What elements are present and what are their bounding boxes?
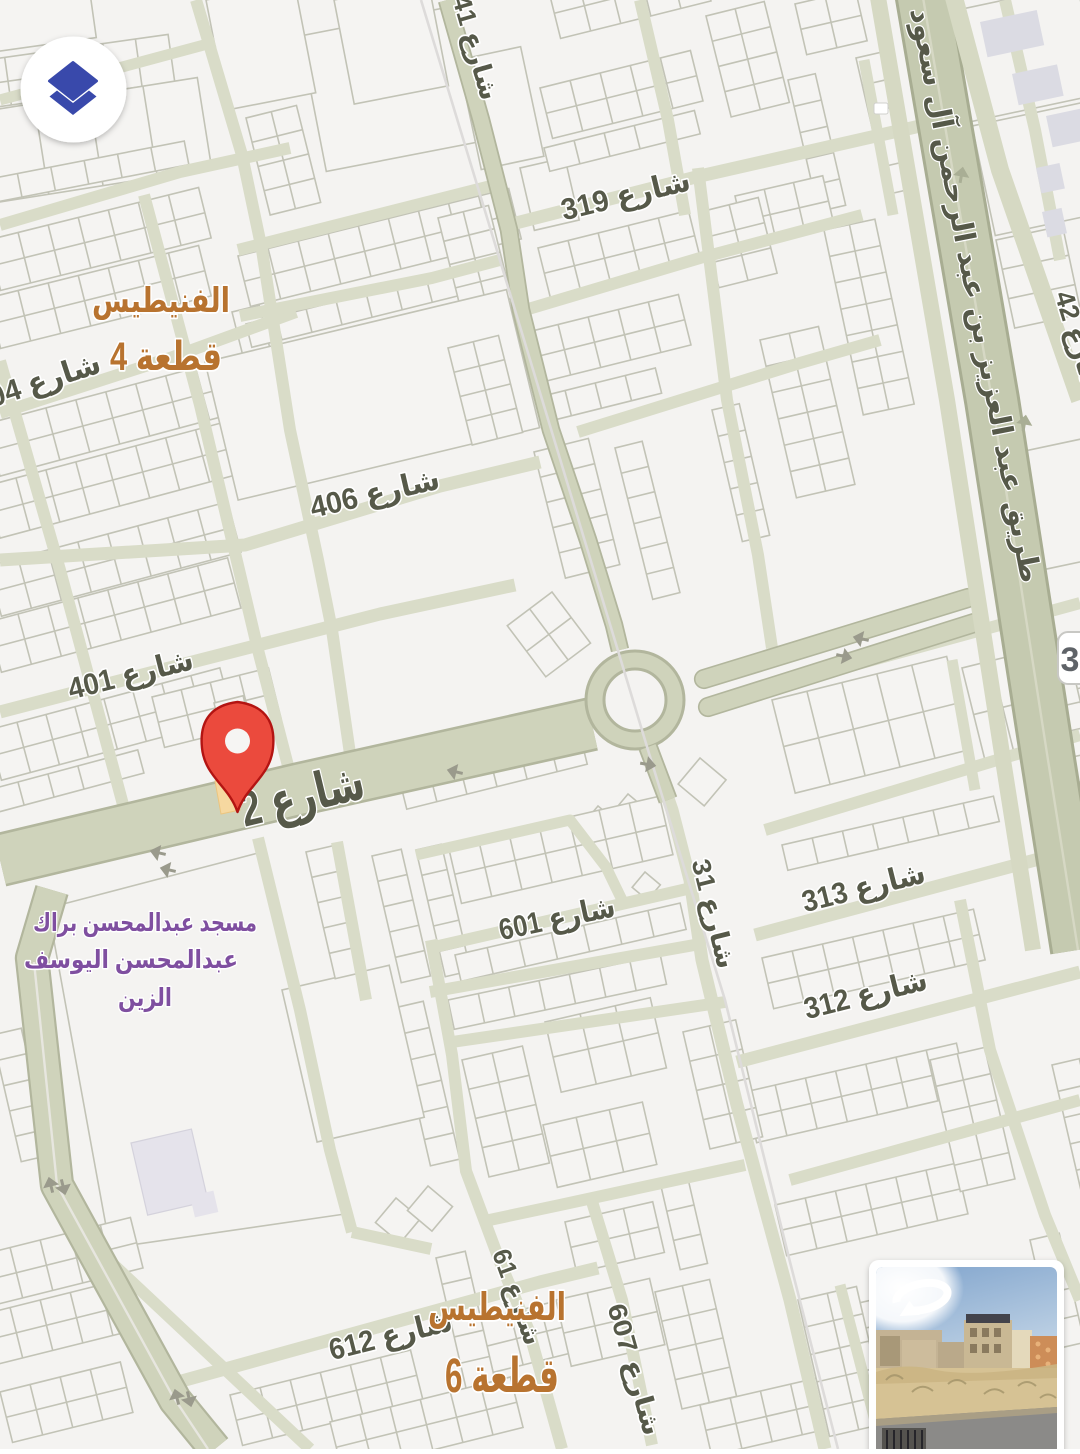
svg-text:قطعة 4: قطعة 4 — [110, 335, 222, 379]
svg-text:عبدالمحسن اليوسف: عبدالمحسن اليوسف — [24, 946, 238, 975]
svg-text:الفنيطيس: الفنيطيس — [428, 1287, 566, 1329]
svg-text:مسجد عبدالمحسن براك: مسجد عبدالمحسن براك — [33, 909, 257, 938]
svg-text:الفنيطيس: الفنيطيس — [92, 282, 230, 320]
svg-text:3: 3 — [1061, 641, 1080, 679]
svg-text:قطعة 6: قطعة 6 — [445, 1350, 559, 1403]
svg-text:الزين: الزين — [118, 984, 172, 1013]
